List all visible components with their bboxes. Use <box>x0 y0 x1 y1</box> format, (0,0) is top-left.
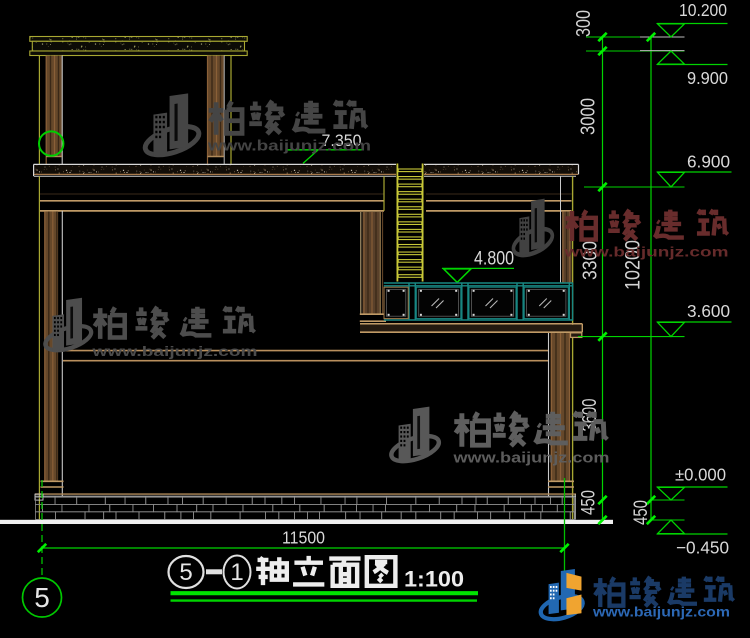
svg-text:4.800: 4.800 <box>474 249 514 270</box>
svg-text:300: 300 <box>573 10 595 37</box>
svg-text:1:100: 1:100 <box>404 566 464 591</box>
svg-text:www.baijunjz.com: www.baijunjz.com <box>207 139 371 155</box>
svg-text:11500: 11500 <box>282 528 325 548</box>
svg-text:3.600: 3.600 <box>687 301 730 321</box>
svg-text:6.900: 6.900 <box>687 152 730 172</box>
svg-text:450: 450 <box>631 500 652 525</box>
svg-text:www.baijunjz.com: www.baijunjz.com <box>91 344 257 359</box>
svg-text:www.baijunjz.com: www.baijunjz.com <box>452 451 609 467</box>
svg-text:±0.000: ±0.000 <box>675 465 726 485</box>
svg-text:3000: 3000 <box>577 98 599 135</box>
svg-text:10.200: 10.200 <box>679 0 727 20</box>
svg-text:1: 1 <box>230 559 243 586</box>
svg-text:5: 5 <box>179 559 192 586</box>
svg-text:5: 5 <box>34 582 50 613</box>
svg-text:www.baijunjz.com: www.baijunjz.com <box>592 604 730 620</box>
svg-text:9.900: 9.900 <box>687 68 728 88</box>
svg-text:450: 450 <box>579 490 600 515</box>
svg-text:www.baijunjz.com: www.baijunjz.com <box>563 244 728 260</box>
svg-text:−0.450: −0.450 <box>676 538 729 558</box>
